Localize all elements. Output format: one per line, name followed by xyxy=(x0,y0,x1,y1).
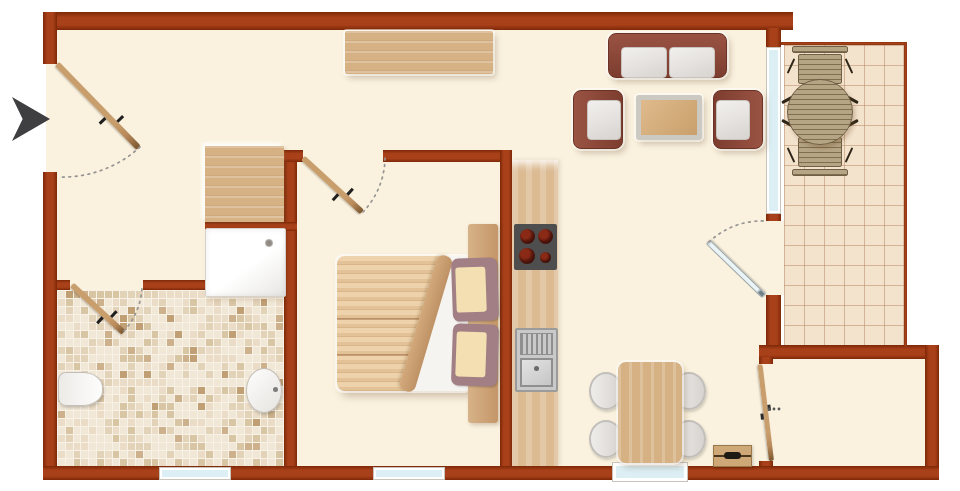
kitchen-counter xyxy=(512,160,558,466)
wardrobe xyxy=(345,31,493,74)
bedroom-window xyxy=(374,468,444,479)
stove-burner xyxy=(520,229,535,244)
wall-bedroom-top xyxy=(383,150,512,162)
wall-storage-left-upper xyxy=(759,357,773,364)
balcony-table xyxy=(787,79,853,145)
balcony-chair-back xyxy=(792,46,848,53)
sofa-cushion xyxy=(669,47,715,78)
floor-plan xyxy=(0,0,960,491)
bed-pillow xyxy=(451,257,499,322)
sink-basin xyxy=(520,358,553,387)
wall-storage-top xyxy=(759,345,939,359)
sofa-cushion xyxy=(621,47,667,78)
wall-left-upper xyxy=(43,12,57,64)
washbasin xyxy=(246,368,282,413)
wall-bathroom-bedroom xyxy=(284,150,297,466)
wall-bedroom-door-stub xyxy=(284,150,303,162)
bathroom-window xyxy=(160,468,230,479)
toilet xyxy=(58,372,103,406)
balcony-door-threshold xyxy=(766,221,784,295)
stove-burner xyxy=(540,252,551,263)
wall-top xyxy=(43,12,793,30)
stove xyxy=(514,224,557,270)
coffee-table xyxy=(636,95,702,140)
sink-drainboard xyxy=(520,333,553,355)
sideboard-cabinet xyxy=(713,445,752,467)
stove-burner xyxy=(519,248,535,264)
wall-left-lower xyxy=(43,172,57,480)
bed-pillow xyxy=(451,323,499,387)
wall-bath-top-right xyxy=(143,280,205,290)
entrance-arrow-icon xyxy=(12,96,50,142)
dining-table xyxy=(618,362,682,463)
shower-tray xyxy=(205,228,286,297)
armchair-right-cushion xyxy=(716,100,750,140)
bed-pillow-inner xyxy=(455,331,487,377)
balcony-chair-back xyxy=(792,169,848,176)
bed-pillow-inner xyxy=(455,267,487,313)
basin-faucet xyxy=(273,387,278,392)
armchair-left-cushion xyxy=(587,100,621,140)
wall-kitchen xyxy=(500,150,512,466)
wall-balcony-top xyxy=(781,42,907,45)
closet xyxy=(205,146,284,222)
storage-room-floor xyxy=(773,359,925,466)
wall-right-top-stub xyxy=(766,28,781,48)
shower-drain xyxy=(265,239,273,247)
wall-right-mid-stub xyxy=(766,213,781,221)
wall-balcony-right xyxy=(904,42,907,347)
stove-burner xyxy=(538,229,553,244)
sink-unit xyxy=(515,328,558,392)
wall-bath-top-left xyxy=(57,280,70,290)
sink-faucet xyxy=(534,366,539,371)
living-room-window xyxy=(767,48,780,213)
dining-window xyxy=(613,463,687,481)
wall-storage-bottom xyxy=(759,466,939,480)
sideboard-handle xyxy=(724,452,741,459)
wall-storage-right xyxy=(925,345,939,480)
